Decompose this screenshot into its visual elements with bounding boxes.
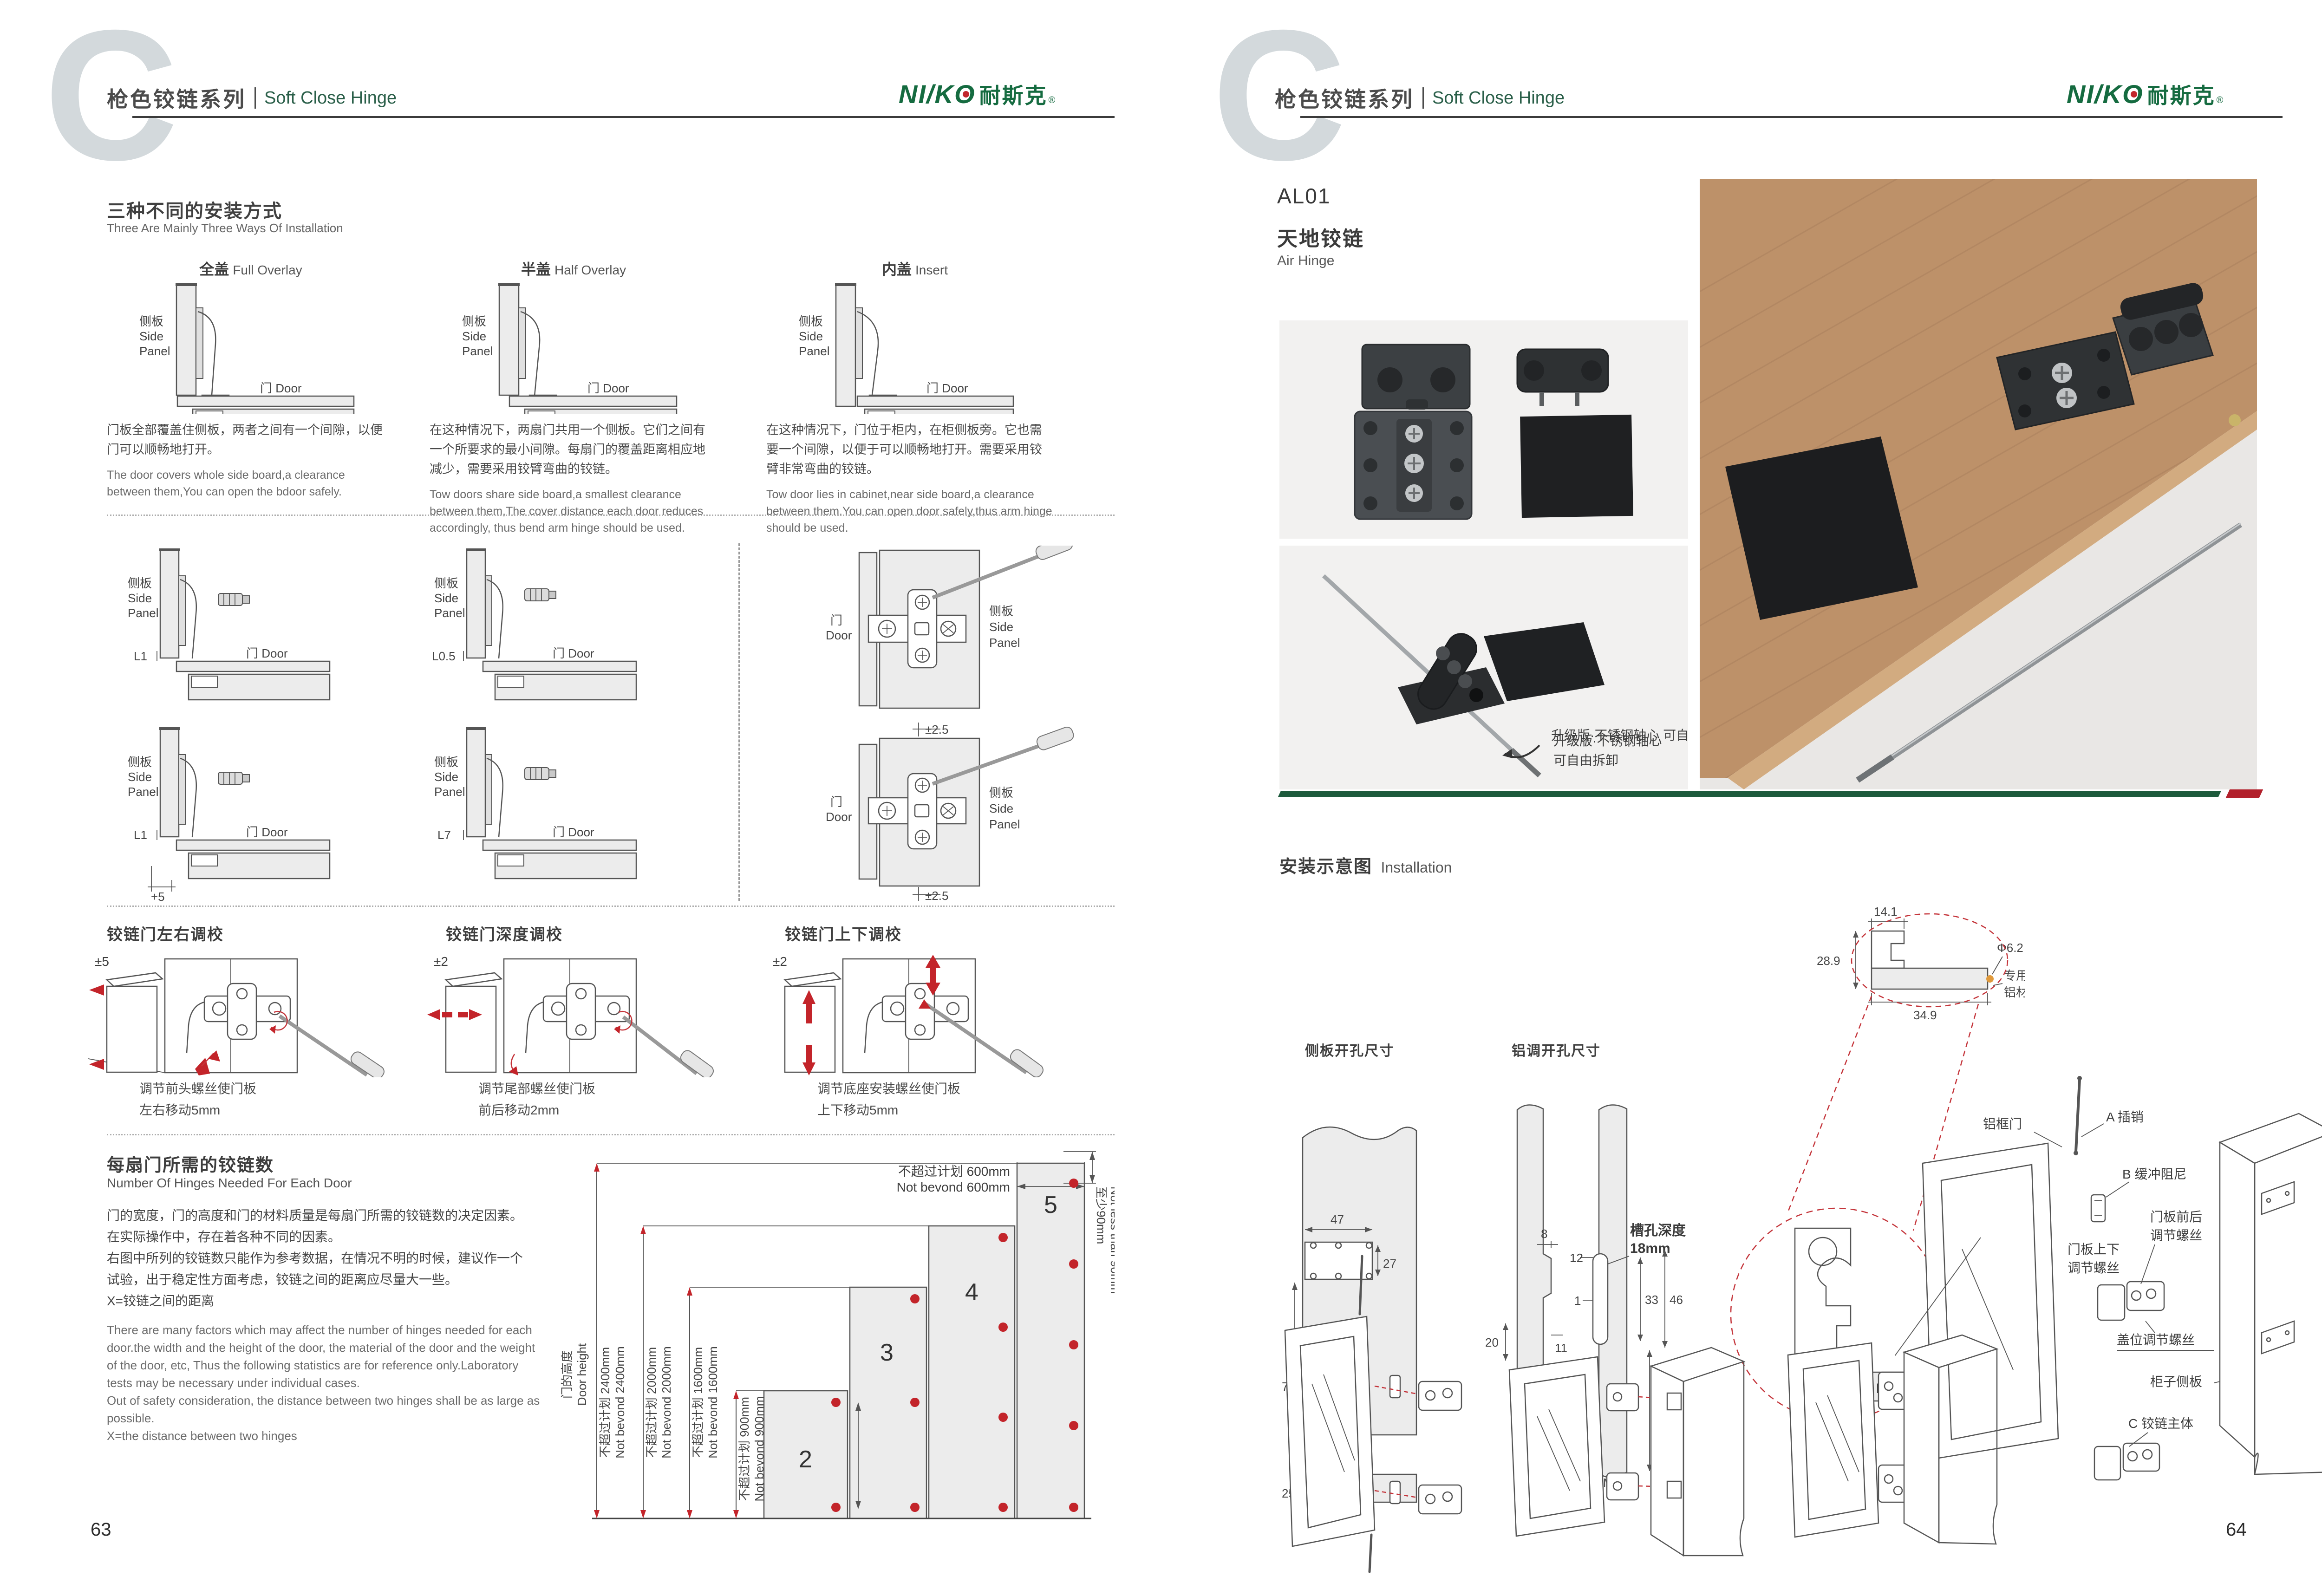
side-en1: Side [434, 770, 458, 784]
gap-diagram-L1: L1 侧板 Side Panel 门 Door [107, 543, 348, 715]
hinge-base-plate [1355, 411, 1472, 519]
row-900-en: Not bevond 900mm [752, 1396, 766, 1502]
side-en2: Panel [434, 785, 465, 799]
adjust-caption-1: 调节前头螺丝使门板 左右移动5mm [139, 1078, 256, 1121]
series-title-en: Soft Close Hinge [264, 88, 397, 108]
label-side-holes: 侧板开孔尺寸 [1305, 1039, 1394, 1060]
side-en1: Side [989, 801, 1013, 815]
insert-diagram: 侧板 Side Panel 门 Door [766, 279, 1054, 414]
series-title-cn: 枪色铰链系列 [107, 83, 246, 113]
gap-dim: L1 [134, 649, 147, 663]
door-label: 门 Door [587, 381, 629, 395]
ways-title-en: Three Are Mainly Three Ways Of Installat… [107, 221, 343, 235]
alu-label-1: 专用 [2004, 969, 2025, 983]
gap-diagram-L1-plus5: L1 +5 侧板 Side Panel 门 Door [107, 722, 348, 903]
door-label: 门 Door [246, 825, 288, 839]
side-panel-label-en2: Panel [139, 344, 170, 358]
type-en: Half Overlay [554, 263, 626, 277]
width-label-en: Not bevond 600mm [897, 1180, 1010, 1194]
row-1600-en: Not bevond 1600mm [706, 1346, 720, 1458]
install-col-half-overlay: 半盖Half Overlay 侧板 Side Panel 门 Door 在这种情… [430, 258, 717, 536]
adjust-title-1: 铰链门左右调校 [107, 922, 224, 945]
min-label-en: Not less than 90mm [1108, 1186, 1115, 1294]
dim-34-9: 34.9 [1913, 1008, 1937, 1022]
gap-diagram-L05: L0.5 侧板 Side Panel 门 Door [413, 543, 655, 715]
bar-count-5: 5 [1044, 1192, 1057, 1218]
door-label: 门 Door [260, 381, 302, 395]
logo-red-dot [2131, 91, 2137, 98]
header-divider [254, 87, 256, 109]
photo-hinge-on-board [1700, 179, 2257, 789]
black-plate [1520, 415, 1633, 518]
euro-screw-icon [525, 768, 556, 780]
install-col-full-overlay: 全盖Full Overlay 侧板 Side Panel 门 Door 门板全部… [107, 258, 395, 500]
half-overlay-diagram: 侧板 Side Panel 门 Door [430, 279, 717, 414]
side-en2: Panel [989, 636, 1020, 650]
row-2400-cn: 不超过计划 2400mm [598, 1347, 612, 1458]
side-cn: 侧板 [434, 576, 458, 590]
type-en: Insert [915, 263, 948, 277]
label-alu-door: 铝框门 [1983, 1117, 2022, 1131]
product-name-cn: 天地铰链 [1277, 222, 1364, 252]
side-en1: Side [989, 620, 1013, 634]
photo-note-text: 升级版·不锈钢轴心 可自由拆卸 [1553, 731, 1662, 770]
dim-14-1: 14.1 [1874, 905, 1898, 919]
cabinet-box [2220, 1114, 2322, 1474]
logo-o: O [954, 79, 975, 109]
hinge-lower [2094, 1443, 2159, 1480]
dim-28-9: 28.9 [1817, 954, 1840, 968]
hinges-title-en: Number Of Hinges Needed For Each Door [107, 1176, 352, 1191]
ways-title-cn: 三种不同的安装方式 [107, 196, 282, 223]
desc-cn: 在这种情况下，门位于柜内，在柜侧板旁。它也需要一个间隙，以便于可以顺畅地打开。需… [766, 420, 1054, 479]
drawing-assembly-steps [1279, 1231, 2097, 1574]
series-title-en: Soft Close Hinge [1432, 88, 1565, 108]
product-code: AL01 [1277, 183, 1331, 208]
gap-dim: L7 [437, 828, 451, 842]
side-en1: Side [434, 591, 458, 605]
divider-dotted-3 [107, 1134, 1115, 1135]
side-panel-label-en1: Side [462, 329, 486, 343]
hinge-flap [1362, 345, 1470, 410]
door-en: Door [826, 810, 852, 824]
profile-small: 14.1 28.9 Φ6.2 34.9 专用 铝材 [1817, 905, 2025, 1022]
photo-hinge-parts [1279, 320, 1688, 539]
type-cn: 全盖 [199, 261, 229, 278]
col-header: 全盖Full Overlay [107, 258, 395, 279]
page-right: C 枪色铰链系列 Soft Close Hinge NI/K O 耐斯克 ® A… [1168, 0, 2322, 1596]
euro-screw-icon [218, 772, 249, 784]
install-col-insert: 内盖Insert 侧板 Side Panel 门 Door 在这种情况下，门位于… [766, 258, 1063, 536]
range: ±5 [95, 954, 109, 969]
range: ±2 [773, 954, 787, 969]
header-rule [1300, 116, 2283, 118]
door-cn: 门 [830, 613, 842, 627]
divider-green [1278, 791, 2221, 797]
door-label: 门 Door [246, 646, 288, 660]
door-en: Door [826, 628, 852, 642]
side-en2: Panel [434, 606, 465, 620]
side-cn: 侧板 [128, 576, 152, 590]
pin-rod [2076, 1080, 2080, 1152]
nisko-logo: NI/K O 耐斯克 ® [899, 79, 1055, 110]
dim-phi-6-2: Φ6.2 [1997, 941, 2023, 955]
adjust-diagram-depth: ±2 [427, 947, 734, 1077]
desc-cn: 门板全部覆盖住侧板，两者之间有一个间隙，以便门可以顺畅地打开。 [107, 420, 385, 459]
bar-count-4: 4 [965, 1279, 978, 1306]
euro-screw-icon [218, 593, 249, 606]
adjust-title-2: 铰链门深度调校 [446, 922, 563, 945]
desc-cn: 在这种情况下，两扇门共用一个侧板。它们之间有一个所要求的最小间隙。每扇门的覆盖距… [430, 420, 708, 479]
side-cn: 侧板 [989, 786, 1013, 800]
hinge-upper [2098, 1282, 2164, 1320]
side-en2: Panel [989, 817, 1020, 831]
gap-diagram-L7: L7 侧板 Side Panel 门 Door [413, 722, 655, 903]
side-panel-label-en2: Panel [462, 344, 493, 358]
logo-reg-mark: ® [2217, 95, 2224, 106]
catalog-spread: C 枪色铰链系列 Soft Close Hinge NI/K O 耐斯克 ® 三… [0, 0, 2322, 1596]
product-name-en: Air Hinge [1277, 253, 1334, 269]
divider-red-segment [2226, 789, 2263, 798]
full-overlay-diagram: 侧板 Side Panel 门 Door [107, 279, 395, 414]
nisko-logo: NI/K O 耐斯克 ® [2067, 79, 2223, 110]
mount-plate-holes [2262, 1182, 2294, 1354]
adjust-diagram-ud: ±2 [766, 947, 1073, 1077]
step-door-exploded [1285, 1256, 1461, 1572]
series-title-cn: 枪色铰链系列 [1275, 83, 1414, 113]
logo-o: O [2122, 79, 2143, 109]
adjust-diagram-lr: ±5 [88, 947, 395, 1077]
side-panel-label-cn: 侧板 [799, 314, 823, 328]
type-cn: 内盖 [882, 261, 912, 278]
side-cn: 侧板 [989, 604, 1013, 618]
divider-dotted-1 [107, 515, 1115, 516]
min-label-cn: 至少90mm [1094, 1186, 1108, 1244]
adjust-caption-3: 调节底座安装螺丝使门板 上下移动5mm [817, 1078, 960, 1121]
gap-dim: L0.5 [432, 649, 456, 663]
door-label: 门 Door [553, 825, 594, 839]
bar-count-2: 2 [799, 1446, 812, 1473]
bar-count-3: 3 [880, 1339, 894, 1366]
adjust-caption-2: 调节尾部螺丝使门板 前后移动2mm [478, 1078, 595, 1121]
logo-cn: 耐斯克 [2147, 79, 2216, 110]
desc-en: Tow doors share side board,a smallest cl… [430, 486, 708, 536]
label-front-back-2: 调节螺丝 [2150, 1228, 2202, 1243]
step-door-cabinet-apart [1509, 1348, 1744, 1556]
hinge-count-chart: 门的高度 Door height 不超过计划 2400mm Not bevond… [557, 1142, 1115, 1528]
label-alu-holes: 铝调开孔尺寸 [1512, 1039, 1601, 1060]
type-en: Full Overlay [233, 263, 302, 277]
gap-offset-dim: +5 [151, 890, 165, 903]
logo-text: NI/K [899, 79, 954, 109]
bar-4 [929, 1226, 1015, 1518]
side-panel-label-en1: Side [799, 329, 823, 343]
height-label-en: Door height [575, 1343, 589, 1406]
label-hinge-body: C 铰链主体 [2128, 1416, 2193, 1431]
install-title-cn: 安装示意图 [1279, 857, 1372, 877]
door-label: 门 Door [553, 646, 594, 660]
euro-screw-icon [525, 589, 556, 601]
type-cn: 半盖 [521, 261, 551, 278]
side-panel-label-cn: 侧板 [139, 314, 163, 328]
pm-bottom: ±2.5 [925, 889, 948, 903]
col-header: 内盖Insert [766, 258, 1063, 279]
door-label: 门 Door [926, 381, 968, 395]
page-header: 枪色铰链系列 Soft Close Hinge [107, 83, 397, 113]
side-en2: Panel [128, 606, 159, 620]
gap-dim: L1 [134, 828, 147, 842]
side-en2: Panel [128, 785, 159, 799]
door-cn: 门 [830, 795, 842, 809]
page-header: 枪色铰链系列 Soft Close Hinge [1275, 83, 1565, 113]
width-label-cn: 不超过计划 600mm [898, 1164, 1010, 1179]
side-en1: Side [128, 770, 152, 784]
page-number-right: 64 [2226, 1519, 2247, 1540]
faceview-diagram-2: ±2.5 ±2.5 门 Door 侧板 Side Panel [822, 719, 1082, 905]
install-title-en: Installation [1381, 859, 1452, 876]
pm-top: ±2.5 [925, 723, 948, 736]
side-en1: Side [128, 591, 152, 605]
desc-en: The door covers whole side board,a clear… [107, 467, 385, 500]
row-2000-en: Not bevond 2000mm [659, 1346, 673, 1458]
adjust-title-3: 铰链门上下调校 [785, 922, 902, 945]
side-panel-label-en1: Side [139, 329, 163, 343]
header-divider [1422, 87, 1424, 109]
dim-47: 47 [1331, 1212, 1344, 1226]
install-title: 安装示意图 Installation [1279, 852, 1452, 878]
side-cn: 侧板 [434, 755, 458, 769]
logo-reg-mark: ® [1049, 95, 1056, 106]
page-number-left: 63 [91, 1519, 111, 1540]
row-2400-en: Not bevond 2400mm [613, 1346, 627, 1458]
damper [2091, 1195, 2105, 1222]
hinges-desc-cn: 门的宽度，门的高度和门的材料质量是每扇门所需的铰链数的决定因素。 在实际操作中，… [107, 1205, 548, 1312]
row-2000-cn: 不超过计划 2000mm [645, 1347, 659, 1458]
side-panel-label-cn: 侧板 [462, 314, 486, 328]
side-cn: 侧板 [128, 755, 152, 769]
hinges-desc-en: There are many factors which may affect … [107, 1321, 548, 1445]
label-cover-screw: 盖位调节螺丝 [2117, 1333, 2195, 1347]
logo-text: NI/K [2067, 79, 2122, 109]
side-panel-label-en2: Panel [799, 344, 830, 358]
label-damper: B 缓冲阻尼 [2122, 1167, 2186, 1181]
height-label-cn: 门的高度 [560, 1350, 574, 1399]
col-header: 半盖Half Overlay [430, 258, 717, 279]
logo-red-dot [963, 91, 969, 98]
alu-label-2: 铝材 [2004, 985, 2025, 999]
label-pin: A 插销 [2106, 1110, 2144, 1124]
divider-dashed-vertical [738, 543, 740, 901]
header-rule [132, 116, 1115, 118]
label-cabinet: 柜子侧板 [2150, 1375, 2202, 1389]
row-900-cn: 不超过计划 900mm [737, 1397, 751, 1501]
range: ±2 [434, 954, 448, 969]
hinges-title-cn: 每扇门所需的铰链数 [107, 1151, 274, 1176]
faceview-diagram-1: 门 Door 侧板 Side Panel [822, 546, 1082, 713]
label-front-back-1: 门板前后 [2150, 1210, 2202, 1224]
step-door-attached [1788, 1335, 1997, 1544]
logo-cn: 耐斯克 [979, 79, 1048, 110]
page-left: C 枪色铰链系列 Soft Close Hinge NI/K O 耐斯克 ® 三… [0, 0, 1168, 1596]
row-1600-cn: 不超过计划 1600mm [691, 1347, 705, 1458]
desc-en: Tow door lies in cabinet,near side board… [766, 486, 1054, 536]
divider-dotted-2 [107, 905, 1115, 907]
